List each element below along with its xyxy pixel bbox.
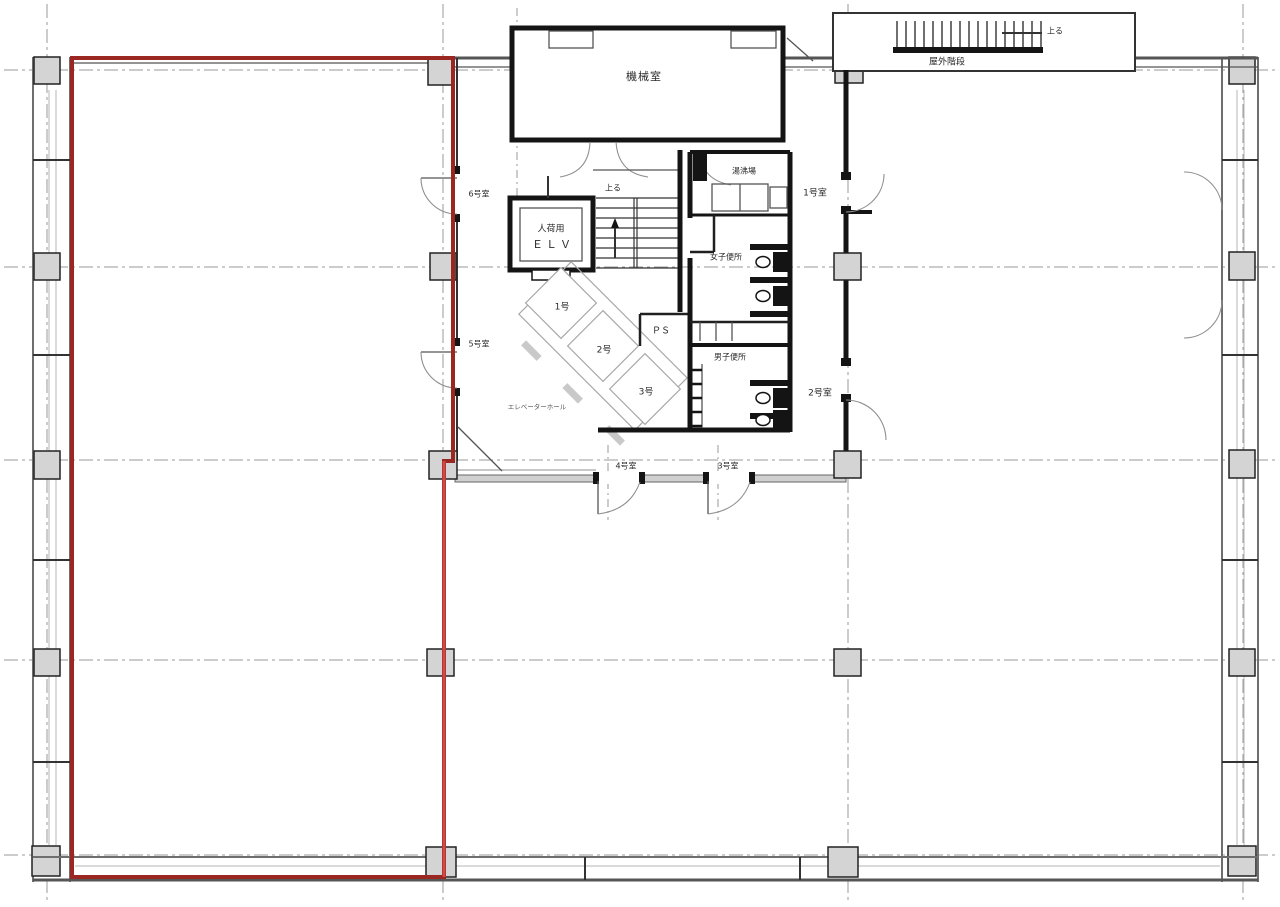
room5-label: 5号室: [468, 339, 489, 349]
pipe-shaft: ＰＳ: [640, 314, 688, 346]
room2-label: 2号室: [808, 387, 832, 399]
service-elevator-label-2: ＥＬＶ: [532, 238, 574, 251]
elevator-bank-diagonal: 1号 2号 3号: [519, 262, 687, 446]
womens-toilet-label: 女子便所: [710, 252, 742, 262]
room1-label: 1号室: [803, 187, 827, 199]
elevator-car2-label: 2号: [597, 345, 612, 356]
machine-room: 機械室: [512, 28, 813, 185]
room3-label: 3号室: [717, 461, 738, 471]
lease-boundary: [72, 58, 453, 877]
elevator-car3-label: 3号: [639, 387, 654, 398]
lease-boundary-outline: [72, 58, 453, 877]
elevator-hall-label: エレベーターホール: [508, 402, 567, 411]
mens-toilet-label: 男子便所: [714, 352, 746, 362]
outdoor-stair-label: 屋外階段: [929, 56, 965, 68]
room4-label: 4号室: [615, 461, 636, 471]
exterior-right-wall: [1184, 57, 1258, 882]
elevator-car1-label: 1号: [555, 302, 570, 313]
mens-toilet: 男子便所: [690, 352, 788, 429]
machine-room-label: 機械室: [626, 69, 662, 83]
floor-plan-canvas: 機械室 屋外階段 上る 1号室 2号室: [0, 0, 1280, 907]
internal-stair-up-label: 上る: [605, 184, 621, 193]
outdoor-staircase: 屋外階段 上る: [833, 13, 1135, 71]
hot-water-label: 湯沸場: [732, 166, 756, 176]
service-elevator-label-1: 人荷用: [537, 224, 564, 235]
service-elevator: 人荷用 ＥＬＶ: [510, 176, 593, 280]
hot-water-room: 湯沸場: [693, 153, 787, 211]
pipe-shaft-label: ＰＳ: [652, 327, 670, 337]
floor-plan-drawing: 機械室 屋外階段 上る 1号室 2号室: [0, 0, 1280, 907]
room6-label: 6号室: [468, 189, 489, 199]
outdoor-stair-up-label: 上る: [1047, 27, 1063, 36]
exterior-left-wall: [32, 57, 70, 882]
